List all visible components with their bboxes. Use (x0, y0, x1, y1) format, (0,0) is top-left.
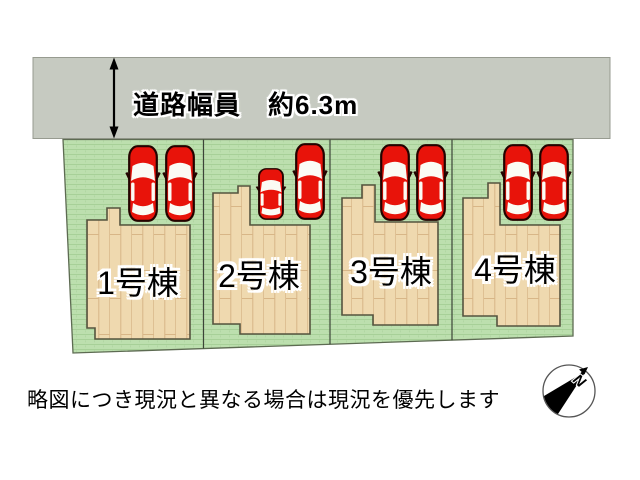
car-icon (293, 144, 326, 219)
car-icon (257, 169, 286, 219)
site-plan-page: N 道路幅員 約6.3m 1号棟 2号棟 3号棟 4号棟 略図につき現況と異なる… (0, 0, 640, 480)
disclaimer-text: 略図につき現況と異なる場合は現況を優先します (27, 384, 500, 414)
lot-2-label: 2号棟 (218, 251, 300, 297)
car-icon (126, 146, 159, 221)
car-icon (378, 145, 411, 220)
road-width-label: 道路幅員 約6.3m (133, 85, 358, 122)
car-icon (163, 146, 196, 221)
car-icon (537, 145, 570, 220)
lot-3-label: 3号棟 (350, 247, 432, 293)
lot-1-label: 1号棟 (97, 258, 179, 304)
lot-4-label: 4号棟 (474, 245, 556, 291)
compass-icon: N (543, 365, 595, 417)
car-icon (414, 145, 447, 220)
car-icon (501, 145, 534, 220)
